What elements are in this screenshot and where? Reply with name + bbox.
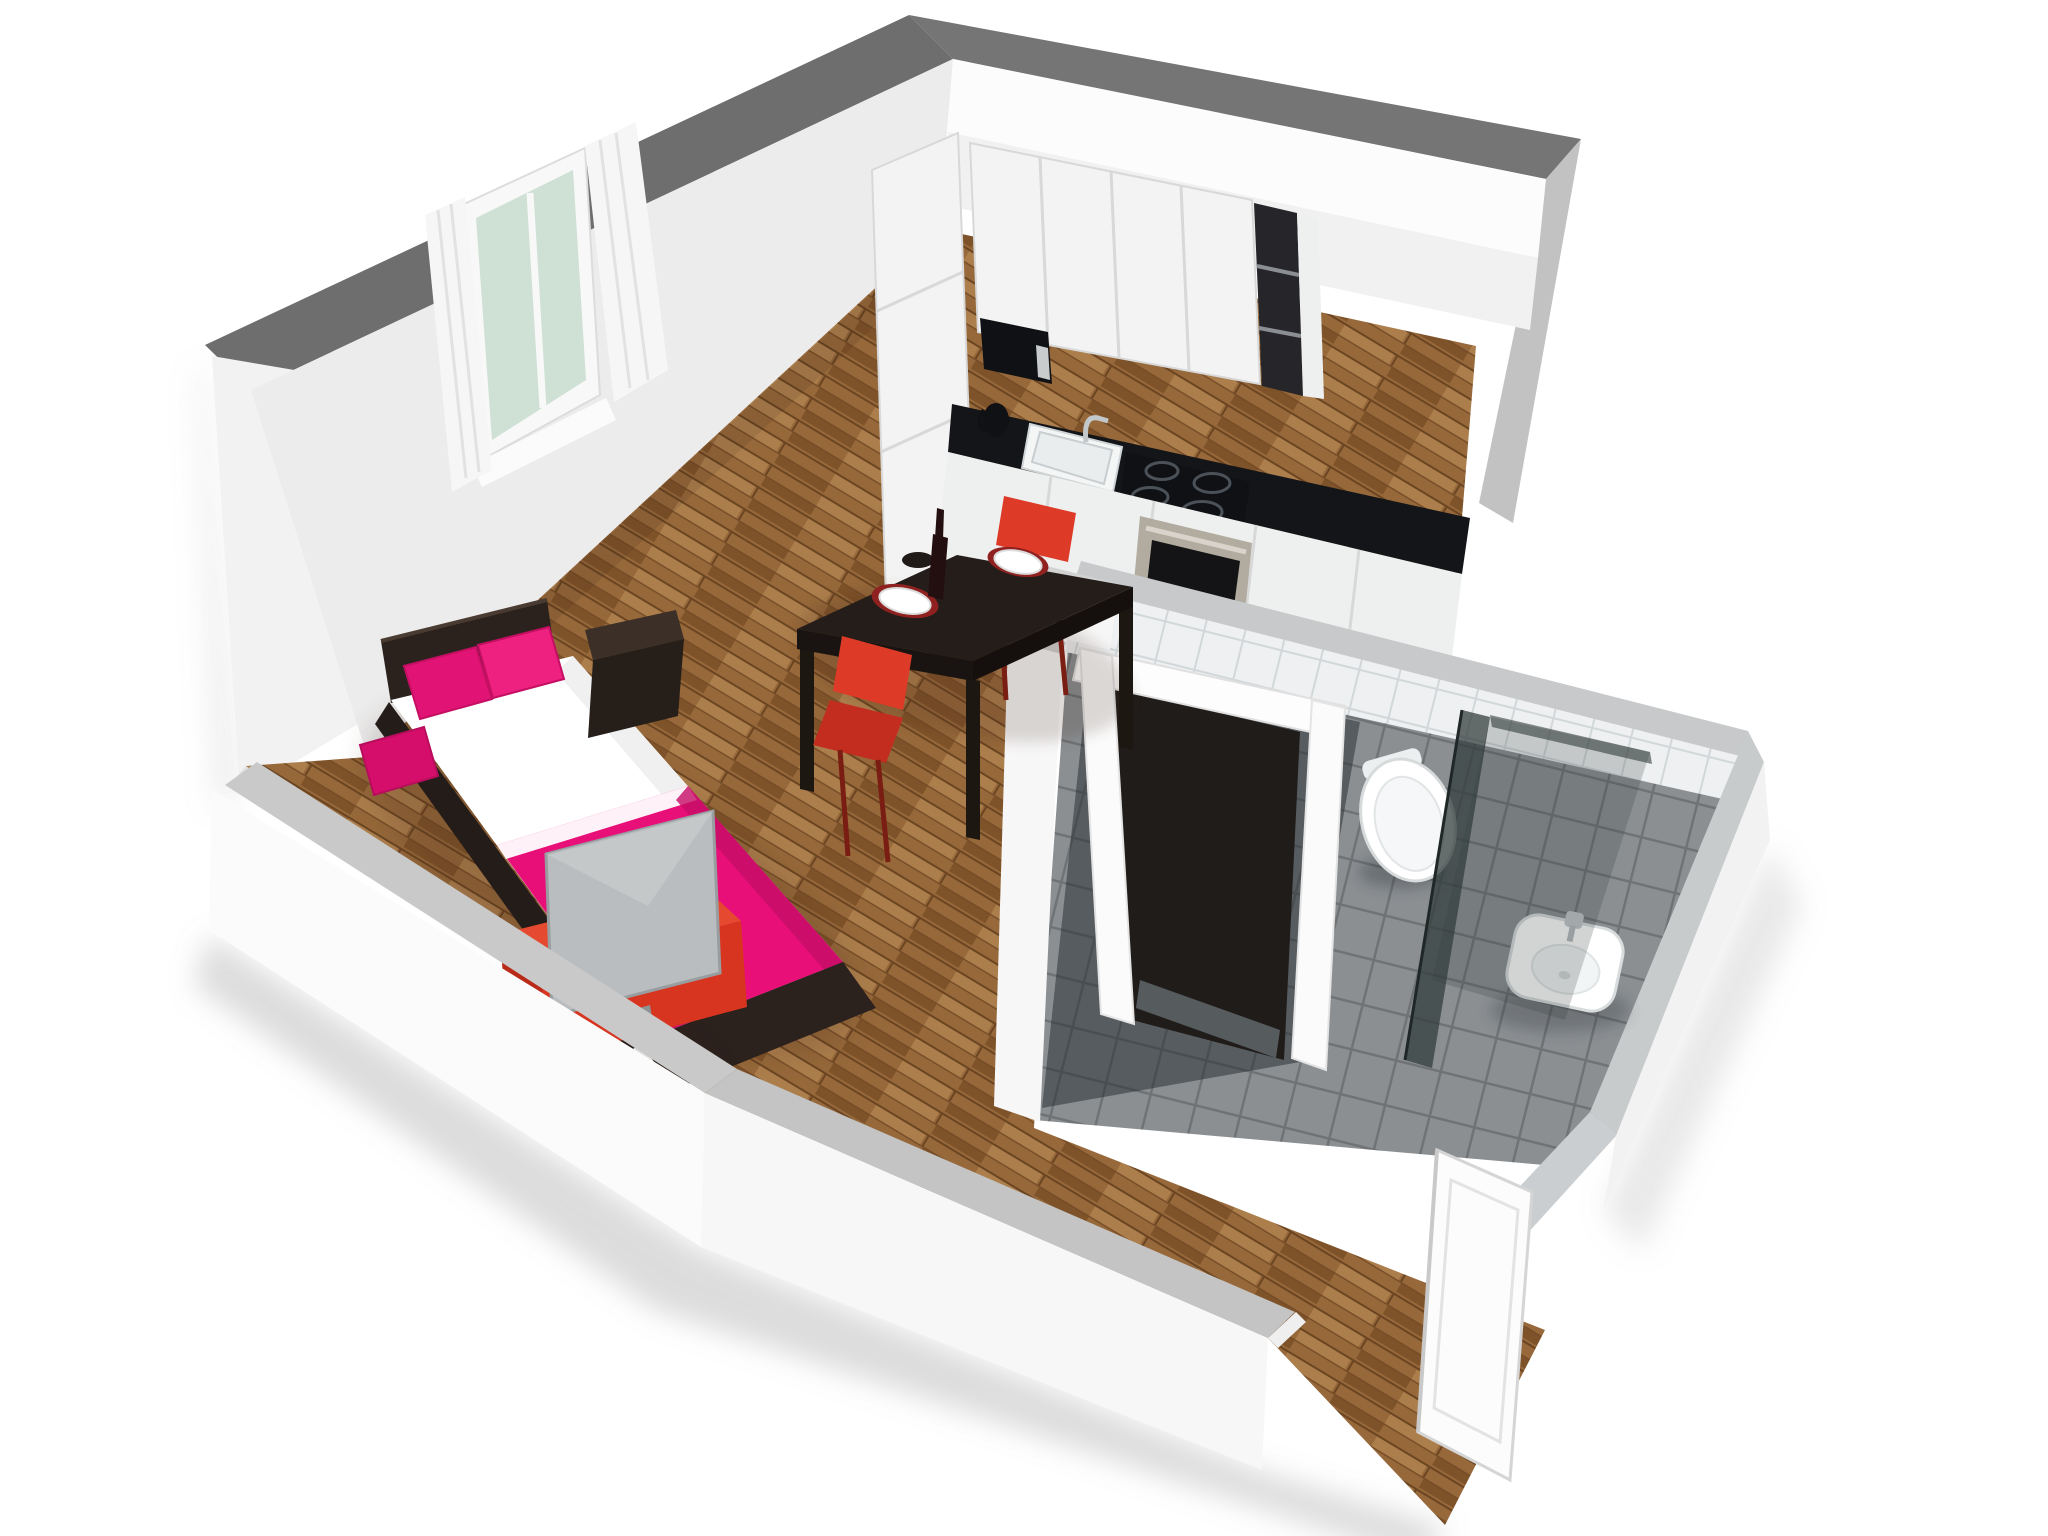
table-leg-east <box>1119 603 1133 750</box>
apartment-3d-svg <box>0 0 2048 1536</box>
kettle <box>983 403 1009 437</box>
bowl <box>902 552 934 568</box>
microwave-keypad <box>1036 345 1050 380</box>
open-shelf <box>1254 203 1303 396</box>
table-leg-west <box>800 645 814 792</box>
table-leg-south <box>966 678 980 840</box>
floorplan-render <box>0 0 2048 1536</box>
